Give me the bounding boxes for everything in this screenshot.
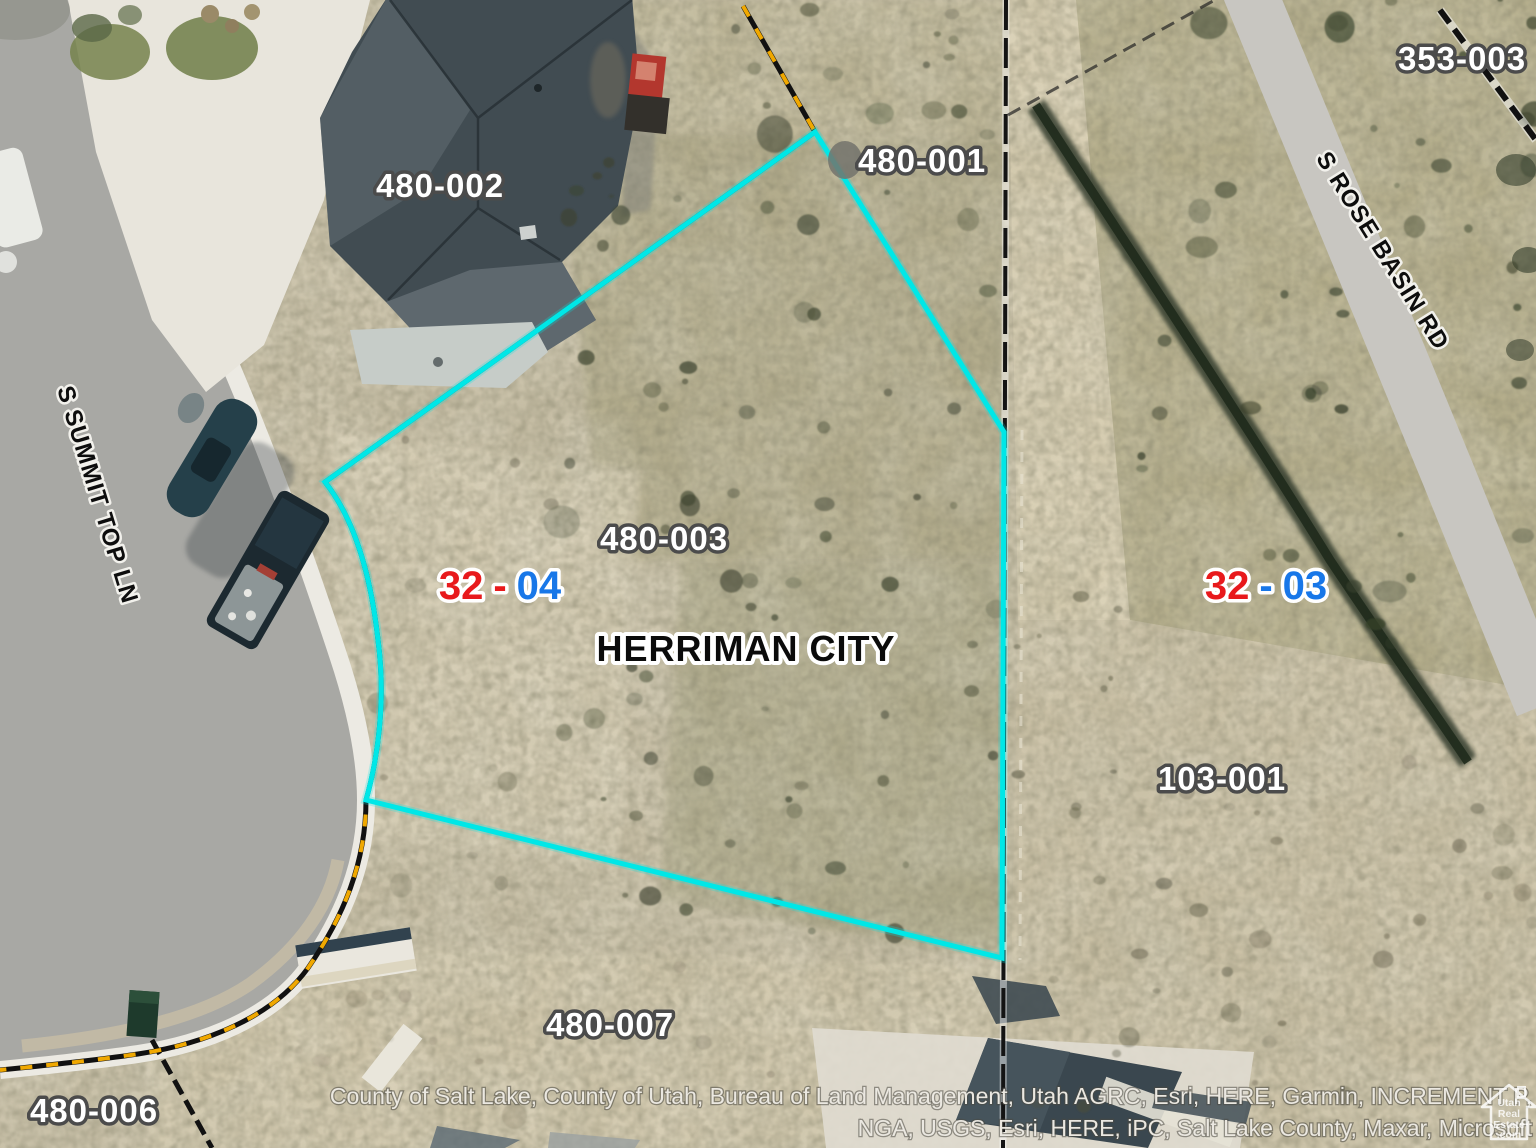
dumpster [126, 990, 159, 1038]
parcel-label: 480-007 [546, 1006, 674, 1043]
parcel-label: 353-003 [1398, 40, 1526, 77]
section-page: 03 [1283, 564, 1328, 608]
parcel-label: 103-001 [1158, 760, 1286, 797]
section-label-32-04: 32-04 [439, 564, 562, 608]
ground-feature-blob [828, 141, 862, 179]
parcel-label: 480-001 [858, 142, 986, 179]
section-book: 32 [439, 564, 484, 608]
section-page: 04 [517, 564, 562, 608]
parcel-label: 480-003 [600, 520, 728, 557]
attribution-line-1: County of Salt Lake, County of Utah, Bur… [330, 1083, 1532, 1109]
section-sep: - [1259, 564, 1272, 608]
parcel-label: 480-002 [376, 167, 504, 204]
parcel-label: 480-006 [30, 1092, 158, 1129]
section-label-32-03: 32-03 [1205, 564, 1327, 608]
section-book: 32 [1205, 564, 1250, 608]
city-label: HERRIMAN CITY [597, 628, 896, 669]
attribution-line-2: NGA, USGS, Esri, HERE, iPC, Salt Lake Co… [858, 1115, 1533, 1141]
section-sep: - [493, 564, 506, 608]
watermark-text: .com [1497, 1129, 1522, 1141]
parcel-map-canvas[interactable]: 480-002 480-001 480-003 353-003 103-001 … [0, 0, 1536, 1148]
